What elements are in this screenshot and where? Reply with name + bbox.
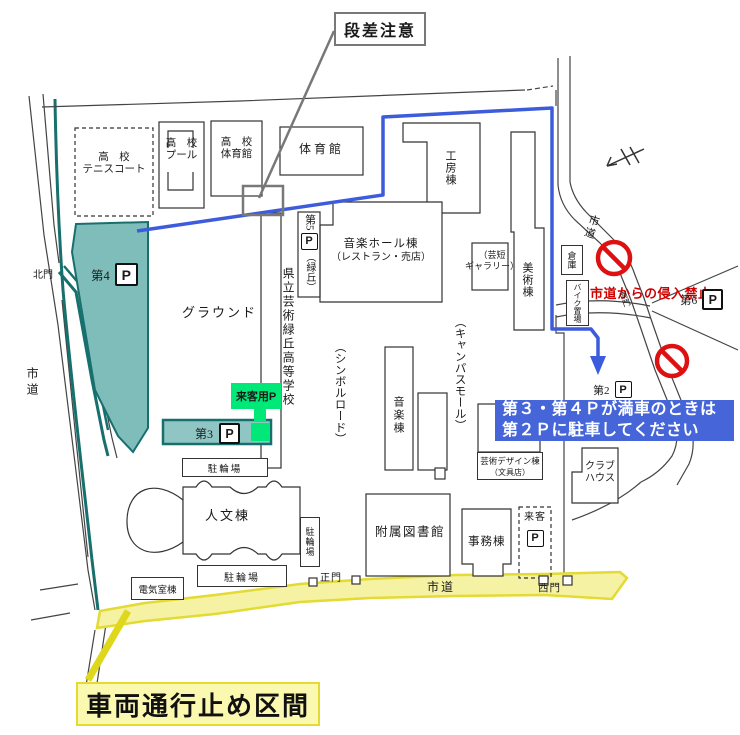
hs-gym-label: 高 校 体育館: [211, 137, 262, 162]
library-label: 附属図書館: [375, 525, 445, 540]
campus-mall-label: （キャンパスモール）: [452, 316, 466, 431]
main-gate-label: 正門: [320, 573, 342, 585]
notice-line1: 第３・第４Ｐが満車のときは: [502, 400, 734, 421]
lot5-label: 第5 P （緑丘）: [299, 214, 319, 292]
buildings: [75, 121, 618, 578]
bike-parking-label: バイク置場: [566, 280, 589, 326]
compass-icon: [607, 147, 644, 166]
tennis-court-label: 高 校 テニスコート: [78, 152, 150, 177]
parking-icon-lot4: P: [115, 263, 138, 286]
high-school-label: 県立芸術緑丘高等学校: [281, 267, 295, 407]
electrical-building-label: 電気室棟: [131, 577, 184, 600]
parking-icon-visitor: P: [527, 530, 544, 547]
city-road-bottom-label: 市道: [427, 580, 455, 594]
road-closure-label: 車両通行止め区間: [76, 682, 320, 726]
main-gate-post-right: [352, 576, 360, 584]
notice-line2: 第２Ｐに駐車してください: [502, 421, 734, 442]
lot3-visitor-segment: [251, 423, 270, 441]
parking-icon-lot2: P: [615, 381, 632, 398]
visitor-parking-label: 来客用P: [231, 383, 281, 409]
humanities-label: 人文棟: [205, 508, 250, 523]
design-building-label: 芸術デザイン棟 （文具店）: [477, 452, 543, 480]
campus-map: 段差注意 第３・第４Ｐが満車のときは 第２Ｐに駐車してください 市道からの侵入禁…: [0, 0, 740, 735]
storage-label: 倉庫: [561, 245, 583, 275]
parking-icon-lot5: P: [301, 233, 318, 250]
humanities-fan-outline: [127, 488, 183, 552]
music-building-annex-outline: [418, 393, 447, 470]
visitor-lot-label: 来客 P: [521, 512, 549, 547]
parking-icon-lot3: P: [219, 423, 240, 444]
no-entry-sign-1: [598, 242, 630, 274]
art-building-label: 美術棟: [520, 262, 533, 298]
parking-lots: [72, 222, 271, 452]
lot6-label: 第6 P: [680, 289, 723, 310]
west-gate-post-right: [563, 576, 572, 585]
pool-label: 高 校 プール: [160, 138, 203, 163]
map-canvas: [0, 0, 740, 735]
symbol-road-label: （シンボルロード）: [332, 341, 346, 445]
lot4-label: 第4 P: [91, 263, 138, 286]
pool-outline: [159, 122, 204, 208]
workshop-label: 工房棟: [443, 150, 456, 186]
music-hall-label: 音楽ホール棟 （レストラン・売店）: [320, 238, 442, 263]
music-building-label: 音楽棟: [391, 396, 404, 435]
north-gate-label: 北門: [33, 270, 53, 282]
west-gate-label: 西門: [538, 583, 561, 595]
ground-label: グラウンド: [182, 305, 257, 320]
small-structure: [435, 468, 445, 479]
parking-icon-lot6: P: [702, 289, 723, 310]
lot3-label: 第3 P: [195, 423, 240, 444]
gym-label: 体育館: [280, 142, 363, 156]
no-entry-sign-2: [657, 346, 687, 376]
parking-full-notice: 第３・第４Ｐが満車のときは 第２Ｐに駐車してください: [495, 400, 734, 441]
club-house-label: クラブ ハウス: [582, 461, 618, 485]
gallery-label: （芸短 ギャラリー）: [464, 250, 520, 271]
lot2-label: 第2 P: [593, 381, 632, 398]
step-warning-label: 段差注意: [334, 12, 426, 46]
city-road-left-label: 市道: [25, 367, 39, 399]
bicycle-parking-2: 駐輪場: [197, 565, 287, 587]
main-gate-post-left: [309, 578, 317, 586]
route-arrowhead: [590, 356, 606, 375]
bicycle-parking-3: 駐輪場: [300, 517, 320, 567]
workshop-outline: [403, 123, 480, 213]
art-building-outline: [511, 132, 544, 330]
bicycle-parking-1: 駐輪場: [182, 458, 268, 477]
admin-label: 事務棟: [468, 536, 506, 550]
